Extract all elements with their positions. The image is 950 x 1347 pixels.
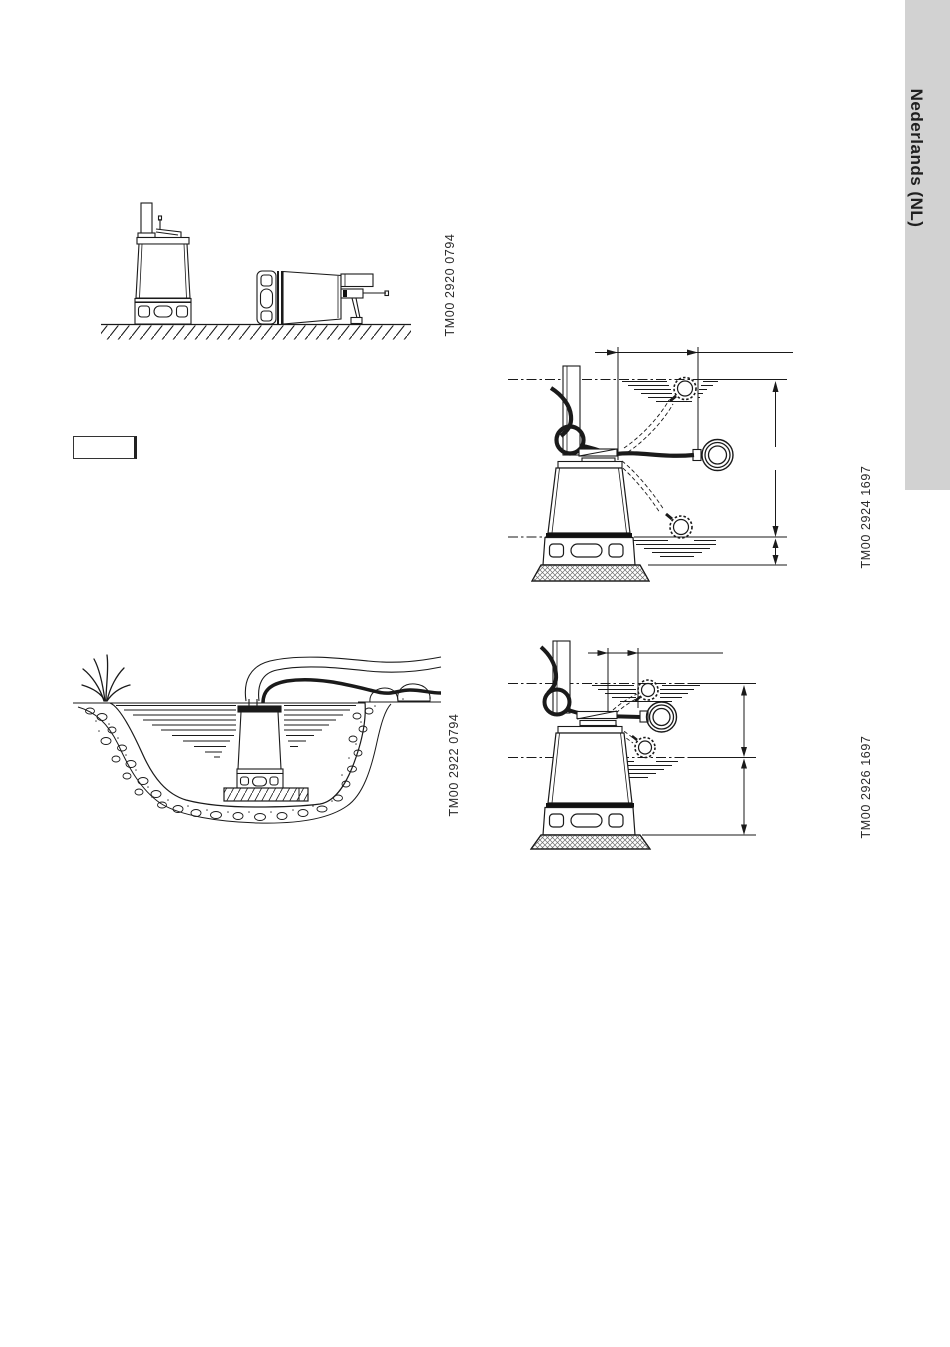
language-tab-label: Nederlands (NL) bbox=[906, 89, 926, 228]
pump-body bbox=[532, 468, 649, 581]
figure-float-switch-long-tether bbox=[505, 345, 805, 590]
plant bbox=[82, 655, 130, 701]
power-cable bbox=[263, 680, 441, 703]
figure-code-label: TM00 2926 1697 bbox=[859, 736, 873, 839]
stop-level-hatching bbox=[630, 541, 716, 557]
figure-code-label: TM00 2920 0794 bbox=[443, 234, 457, 337]
pump-body bbox=[531, 733, 650, 849]
pump-horizontal bbox=[257, 271, 389, 324]
empty-note-box bbox=[73, 436, 137, 459]
start-level-hatching bbox=[622, 382, 718, 402]
figure-code-label: TM00 2922 0794 bbox=[447, 714, 461, 817]
figure-pump-orientations bbox=[85, 195, 420, 347]
manual-page: Nederlands (NL) bbox=[0, 0, 950, 1347]
pump-in-pit bbox=[237, 699, 283, 788]
pump-handle bbox=[558, 711, 622, 733]
language-tab-strip bbox=[905, 0, 950, 490]
figure-code-label: TM00 2924 1697 bbox=[859, 466, 873, 569]
ground-hatching bbox=[101, 326, 411, 340]
pump-vertical bbox=[135, 203, 191, 324]
figure-pit-installation bbox=[60, 640, 445, 835]
pit-outer-outline bbox=[78, 704, 391, 823]
support-plank bbox=[224, 788, 308, 801]
discharge-hose bbox=[245, 657, 441, 701]
figure-float-switch-short-tether bbox=[505, 630, 805, 855]
